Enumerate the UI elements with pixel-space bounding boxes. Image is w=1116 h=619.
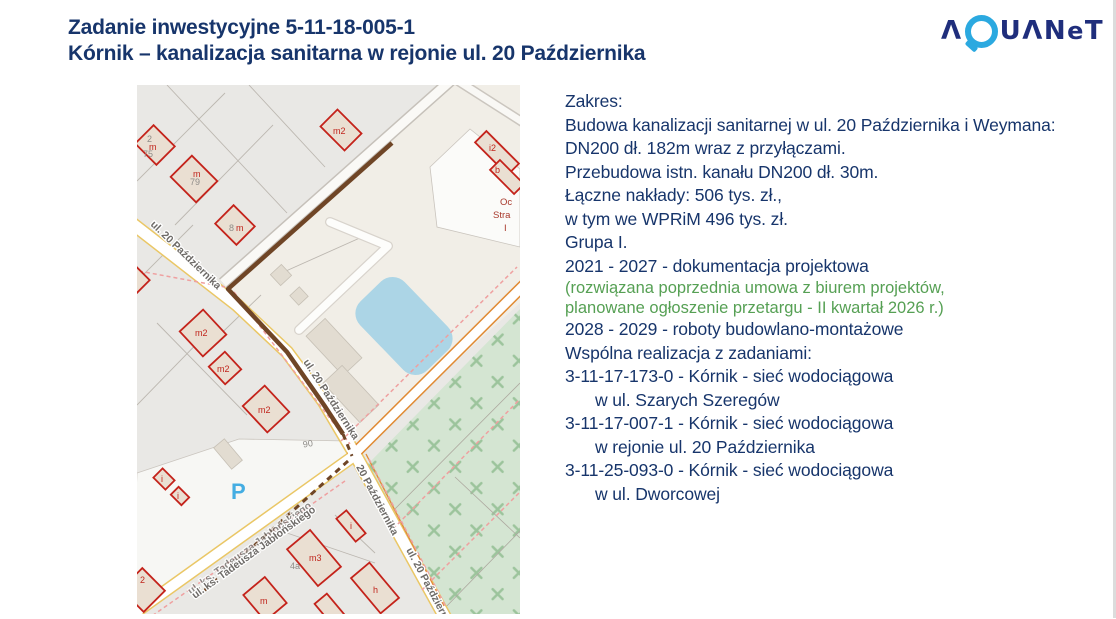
joint-task-id: 3-11-17-173-0 - Kórnik - sieć wodociągow…: [565, 365, 1113, 389]
parcel-label: m2: [195, 328, 208, 338]
svg-text:Stra: Stra: [493, 210, 511, 221]
group-section: Grupa I.: [565, 231, 1113, 255]
scope-line: DN200 dł. 182m wraz z przyłączami.: [565, 137, 1113, 161]
parcel-label: 75: [143, 149, 153, 159]
joint-tasks-section: Wspólna realizacja z zadaniami: 3-11-17-…: [565, 342, 1113, 507]
scope-section: Zakres: Budowa kanalizacji sanitarnej w …: [565, 90, 1113, 184]
group-label: Grupa I.: [565, 231, 1113, 255]
slide-title-line2: Kórnik – kanalizacja sanitarna w rejonie…: [68, 41, 928, 67]
logo-letter-e: e: [1067, 17, 1085, 45]
parcel-label: m2: [333, 126, 346, 136]
logo-letters-a: Λ: [941, 16, 963, 46]
map-image: ul. 20 Października ul. 20 Października …: [137, 85, 520, 614]
scope-line: Budowa kanalizacji sanitarnej w ul. 20 P…: [565, 114, 1113, 138]
parcel-label: m: [236, 223, 244, 233]
parcel-label: h: [373, 585, 378, 595]
parcel-label: 2: [140, 575, 145, 585]
parcel-label: 90: [302, 438, 314, 450]
parcel-label: b: [495, 165, 500, 175]
aquanet-logo: ΛQUΛNeT: [941, 13, 1104, 49]
parcel-label: 8: [229, 223, 234, 233]
parcel-label: m2: [258, 405, 271, 415]
parcel-label: 79: [190, 177, 200, 187]
schedule-note-line2: planowane ogłoszenie przetargu - II kwar…: [565, 298, 1113, 318]
parcel-label: m2: [217, 364, 230, 374]
scope-line: Przebudowa istn. kanału DN200 dł. 30m.: [565, 161, 1113, 185]
joint-task-id: 3-11-25-093-0 - Kórnik - sieć wodociągow…: [565, 459, 1113, 483]
parcel-label: 4a: [290, 561, 300, 571]
parcel-label: m3: [309, 553, 322, 563]
slide-title-line1: Zadanie inwestycyjne 5-11-18-005-1: [68, 15, 928, 41]
parcel-label: i: [350, 521, 352, 531]
joint-task-location: w rejonie ul. 20 Października: [565, 436, 1113, 460]
logo-letter-t: T: [1085, 16, 1104, 46]
schedule-section: 2021 - 2027 - dokumentacja projektowa (r…: [565, 255, 1113, 342]
svg-text:Oc: Oc: [500, 197, 512, 208]
costs-wprim: w tym we WPRiM 496 tys. zł.: [565, 208, 1113, 232]
parcel-label: m: [260, 596, 268, 606]
scope-heading: Zakres:: [565, 90, 1113, 114]
svg-text:I: I: [504, 223, 507, 234]
parcel-label: i2: [489, 143, 496, 153]
joint-header: Wspólna realizacja z zadaniami:: [565, 342, 1113, 366]
slide-body-text: Zakres: Budowa kanalizacji sanitarnej w …: [565, 90, 1113, 506]
schedule-construction: 2028 - 2029 - roboty budowlano-montażowe: [565, 318, 1113, 342]
parcel-label: i: [177, 491, 179, 501]
joint-task-id: 3-11-17-007-1 - Kórnik - sieć wodociągow…: [565, 412, 1113, 436]
costs-total: Łączne nakłady: 506 tys. zł.,: [565, 184, 1113, 208]
logo-letters-uan: UΛN: [1000, 16, 1068, 46]
slide-title: Zadanie inwestycyjne 5-11-18-005-1 Kórni…: [68, 15, 928, 67]
parking-icon: P: [231, 479, 246, 504]
joint-task-location: w ul. Szarych Szeregów: [565, 389, 1113, 413]
joint-task-location: w ul. Dworcowej: [565, 483, 1113, 507]
parcel-label: i: [161, 474, 163, 484]
costs-section: Łączne nakłady: 506 tys. zł., w tym we W…: [565, 184, 1113, 231]
schedule-design: 2021 - 2027 - dokumentacja projektowa: [565, 255, 1113, 279]
logo-q-droplet-icon: Q: [965, 15, 998, 48]
schedule-note-line1: (rozwiązana poprzednia umowa z biurem pr…: [565, 278, 1113, 298]
